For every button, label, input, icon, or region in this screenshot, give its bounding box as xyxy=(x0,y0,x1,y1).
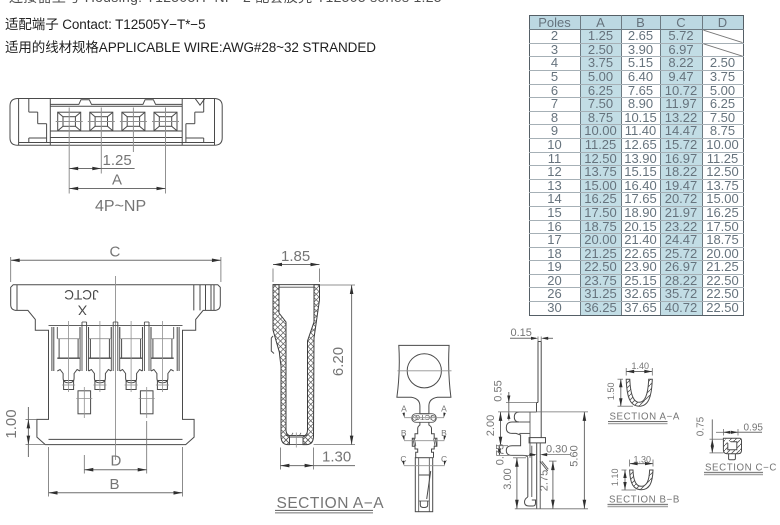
svg-text:1.25: 1.25 xyxy=(103,152,132,169)
svg-text:1.40: 1.40 xyxy=(632,361,650,371)
svg-text:0.95: 0.95 xyxy=(744,422,764,433)
svg-text:1.30: 1.30 xyxy=(634,455,652,465)
svg-text:SECTION A−A: SECTION A−A xyxy=(277,495,385,512)
svg-text:SECTION C−C: SECTION C−C xyxy=(705,462,777,473)
svg-text:0.75: 0.75 xyxy=(696,416,707,436)
svg-text:1.30: 1.30 xyxy=(322,449,351,466)
svg-text:JCTC: JCTC xyxy=(64,287,99,302)
svg-text:X: X xyxy=(77,303,87,319)
svg-text:5.60: 5.60 xyxy=(569,445,581,466)
svg-text:2.00: 2.00 xyxy=(485,415,497,436)
svg-text:B: B xyxy=(110,476,120,493)
svg-text:0.30: 0.30 xyxy=(546,444,567,456)
svg-text:6.20: 6.20 xyxy=(330,347,347,376)
svg-text:1.10: 1.10 xyxy=(610,469,620,487)
svg-text:3.00: 3.00 xyxy=(502,468,514,489)
svg-text:0.15: 0.15 xyxy=(511,327,532,339)
svg-text:1.50: 1.50 xyxy=(606,383,616,401)
svg-text:1.00: 1.00 xyxy=(3,409,20,438)
svg-text:0.75: 0.75 xyxy=(495,444,507,465)
svg-text:2.75: 2.75 xyxy=(539,470,551,491)
svg-text:A: A xyxy=(112,172,122,189)
svg-text:A: A xyxy=(441,404,447,414)
svg-text:JCTC: JCTC xyxy=(414,413,434,422)
svg-text:0.55: 0.55 xyxy=(493,380,505,401)
svg-text:SECTION A−A: SECTION A−A xyxy=(610,411,680,422)
svg-text:1.85: 1.85 xyxy=(281,248,310,265)
svg-text:D: D xyxy=(111,453,122,470)
svg-text:A: A xyxy=(401,404,407,414)
svg-text:C: C xyxy=(110,244,121,261)
svg-text:4P~NP: 4P~NP xyxy=(95,198,146,215)
svg-text:SECTION B−B: SECTION B−B xyxy=(609,494,680,505)
